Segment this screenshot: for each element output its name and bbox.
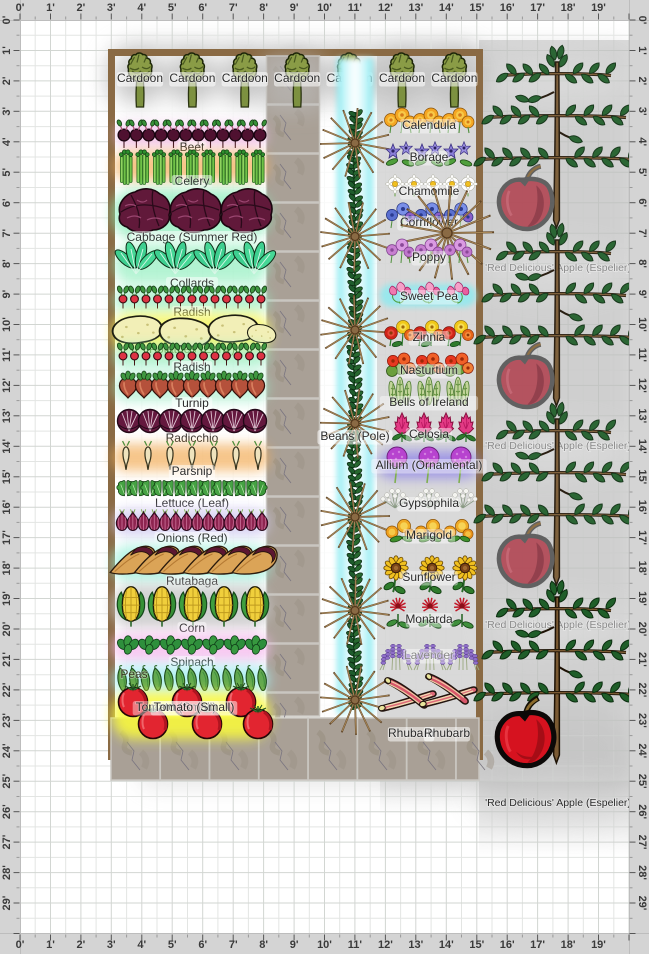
svg-text:7': 7' [229, 2, 238, 14]
svg-text:2': 2' [636, 77, 648, 86]
svg-text:Lettuce (Leaf): Lettuce (Leaf) [155, 496, 229, 510]
svg-text:0': 0' [16, 2, 25, 14]
svg-text:17': 17' [1, 530, 13, 545]
svg-text:9': 9' [290, 939, 299, 951]
svg-text:Marigold: Marigold [406, 528, 452, 542]
svg-text:28': 28' [636, 865, 648, 880]
svg-text:6': 6' [198, 2, 207, 14]
svg-text:28': 28' [1, 865, 13, 880]
svg-text:3': 3' [107, 2, 116, 14]
svg-text:18': 18' [561, 939, 576, 951]
svg-text:8': 8' [259, 939, 268, 951]
svg-text:10': 10' [317, 939, 332, 951]
svg-text:13': 13' [408, 2, 423, 14]
svg-text:'Red Delicious' Apple (Espelie: 'Red Delicious' Apple (Espelier) [485, 797, 631, 809]
svg-text:23': 23' [1, 713, 13, 728]
svg-text:Turnip: Turnip [175, 396, 209, 410]
svg-text:0': 0' [16, 939, 25, 951]
svg-text:7': 7' [229, 939, 238, 951]
svg-text:Onions (Red): Onions (Red) [156, 531, 227, 545]
svg-text:27': 27' [1, 834, 13, 849]
svg-text:Cabbage (Summer Red): Cabbage (Summer Red) [127, 230, 258, 244]
svg-text:29': 29' [1, 895, 13, 910]
svg-text:24': 24' [1, 743, 13, 758]
svg-text:Lavender: Lavender [404, 648, 454, 662]
svg-text:Calendula: Calendula [402, 118, 456, 132]
svg-text:Peas: Peas [120, 667, 147, 681]
svg-text:7': 7' [1, 228, 13, 237]
svg-text:Nasturtium: Nasturtium [400, 363, 458, 377]
svg-text:2': 2' [77, 2, 86, 14]
svg-text:9': 9' [290, 2, 299, 14]
svg-text:Corn: Corn [179, 621, 205, 635]
svg-text:0': 0' [636, 16, 648, 25]
svg-text:10': 10' [1, 317, 13, 332]
svg-text:19': 19' [591, 2, 606, 14]
svg-text:6': 6' [636, 198, 648, 207]
svg-text:11': 11' [1, 347, 13, 362]
svg-text:25': 25' [636, 774, 648, 789]
svg-text:14': 14' [1, 438, 13, 453]
svg-text:12': 12' [636, 378, 648, 393]
svg-text:19': 19' [1, 591, 13, 606]
svg-text:Poppy: Poppy [412, 250, 446, 264]
svg-text:15': 15' [1, 469, 13, 484]
svg-text:15': 15' [469, 939, 484, 951]
svg-text:4': 4' [137, 939, 146, 951]
svg-text:12': 12' [378, 939, 393, 951]
svg-text:Tomato (Small): Tomato (Small) [154, 700, 235, 714]
svg-text:25': 25' [1, 773, 13, 788]
svg-text:1': 1' [636, 46, 648, 55]
svg-text:21': 21' [636, 652, 648, 667]
svg-text:20': 20' [636, 622, 648, 637]
svg-text:20': 20' [1, 621, 13, 636]
svg-text:14': 14' [439, 939, 454, 951]
svg-text:29': 29' [636, 896, 648, 911]
svg-text:9': 9' [636, 290, 648, 299]
svg-text:0': 0' [1, 15, 13, 24]
svg-text:5': 5' [168, 2, 177, 14]
svg-text:1': 1' [46, 2, 55, 14]
svg-text:24': 24' [636, 743, 648, 758]
svg-text:Zinnia: Zinnia [413, 330, 446, 344]
svg-text:Monarda: Monarda [405, 612, 453, 626]
svg-text:17': 17' [530, 2, 545, 14]
svg-text:Bells of Ireland: Bells of Ireland [389, 395, 468, 409]
svg-text:18': 18' [1, 560, 13, 575]
svg-text:Rhubarb: Rhubarb [424, 726, 470, 740]
svg-text:17': 17' [530, 939, 545, 951]
svg-text:18': 18' [561, 2, 576, 14]
svg-text:13': 13' [408, 939, 423, 951]
svg-text:26': 26' [1, 804, 13, 819]
svg-text:16': 16' [636, 500, 648, 515]
svg-text:Allium (Ornamental): Allium (Ornamental) [376, 458, 483, 472]
svg-text:10': 10' [317, 2, 332, 14]
svg-text:16': 16' [500, 939, 515, 951]
svg-text:8': 8' [1, 259, 13, 268]
svg-text:5': 5' [168, 939, 177, 951]
svg-text:15': 15' [636, 469, 648, 484]
svg-text:1': 1' [1, 46, 13, 55]
svg-text:8': 8' [636, 259, 648, 268]
svg-text:21': 21' [1, 652, 13, 667]
svg-text:Beans (Pole): Beans (Pole) [320, 429, 389, 443]
svg-text:2': 2' [1, 76, 13, 85]
svg-text:11': 11' [348, 2, 363, 14]
svg-text:14': 14' [636, 439, 648, 454]
svg-text:18': 18' [636, 561, 648, 576]
svg-text:7': 7' [636, 229, 648, 238]
svg-text:5': 5' [636, 168, 648, 177]
svg-text:5': 5' [1, 167, 13, 176]
svg-text:4': 4' [636, 137, 648, 146]
svg-text:11': 11' [636, 348, 648, 363]
svg-text:Cardoon: Cardoon [379, 71, 425, 85]
svg-text:Borage: Borage [410, 150, 449, 164]
svg-text:8': 8' [259, 2, 268, 14]
svg-text:23': 23' [636, 713, 648, 728]
svg-text:17': 17' [636, 530, 648, 545]
svg-text:1': 1' [46, 939, 55, 951]
svg-text:Celery: Celery [175, 174, 210, 188]
svg-text:19': 19' [636, 591, 648, 606]
svg-text:3': 3' [1, 107, 13, 116]
svg-text:26': 26' [636, 804, 648, 819]
svg-text:Cardoon: Cardoon [274, 71, 320, 85]
svg-text:Radicchio: Radicchio [166, 431, 219, 445]
svg-text:Sunflower: Sunflower [402, 570, 455, 584]
svg-text:4': 4' [137, 2, 146, 14]
svg-text:22': 22' [1, 682, 13, 697]
svg-text:22': 22' [636, 682, 648, 697]
svg-text:2': 2' [77, 939, 86, 951]
svg-text:Cardoon: Cardoon [222, 71, 268, 85]
svg-text:10': 10' [636, 317, 648, 332]
svg-text:6': 6' [1, 198, 13, 207]
svg-text:11': 11' [348, 939, 363, 951]
svg-text:16': 16' [500, 2, 515, 14]
svg-text:4': 4' [1, 137, 13, 146]
svg-text:Cardoon: Cardoon [169, 71, 215, 85]
svg-text:19': 19' [591, 939, 606, 951]
svg-text:3': 3' [636, 107, 648, 116]
svg-text:12': 12' [378, 2, 393, 14]
svg-text:Sweet Pea: Sweet Pea [400, 289, 458, 303]
svg-text:14': 14' [439, 2, 454, 14]
svg-text:9': 9' [1, 289, 13, 298]
svg-text:15': 15' [469, 2, 484, 14]
svg-text:27': 27' [636, 835, 648, 850]
svg-text:Parsnip: Parsnip [172, 464, 213, 478]
svg-text:6': 6' [198, 939, 207, 951]
svg-text:Cardoon: Cardoon [431, 71, 477, 85]
svg-text:Celosia: Celosia [409, 427, 449, 441]
svg-text:12': 12' [1, 378, 13, 393]
svg-text:16': 16' [1, 499, 13, 514]
svg-text:Gypsophila: Gypsophila [399, 496, 459, 510]
svg-text:13': 13' [636, 408, 648, 423]
svg-text:Cardoon: Cardoon [117, 71, 163, 85]
svg-text:3': 3' [107, 939, 116, 951]
svg-text:13': 13' [1, 408, 13, 423]
